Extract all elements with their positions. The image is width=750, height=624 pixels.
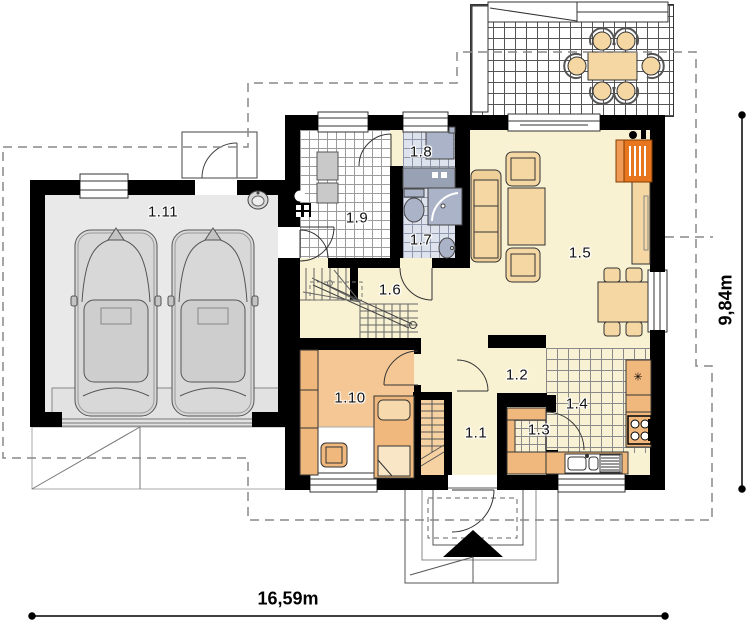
tv-cabinet [632, 182, 650, 264]
room-label-1-8: 1.8 [410, 144, 432, 161]
room-label-1-2: 1.2 [506, 367, 528, 384]
terrace-furniture [564, 28, 664, 104]
vestibule-hall-door [457, 360, 488, 391]
staircase [300, 268, 418, 338]
room-label-1-9: 1.9 [346, 210, 368, 227]
pantry-door [546, 412, 584, 450]
storage-window [403, 112, 448, 132]
fridge-icon: ✳ [633, 371, 642, 384]
floor-plan: 1.1 1.2 1.3 1.4 1.5 1.6 1.7 1.8 1.9 1.10… [0, 0, 750, 624]
garage-utility-door [300, 227, 334, 261]
room-label-1-10: 1.10 [334, 390, 365, 407]
stove [628, 416, 651, 444]
room-label-1-6: 1.6 [379, 282, 401, 299]
dimension-height-label: 9,84m [716, 274, 737, 325]
storage-door [359, 134, 391, 166]
living-room-furniture [471, 129, 652, 336]
coffee-table [508, 188, 545, 245]
kitchen-window [558, 473, 625, 492]
bathroom-door [400, 268, 432, 300]
wash-basin [439, 238, 455, 258]
entrance-steps [405, 488, 558, 583]
car-2 [168, 228, 258, 416]
washer [317, 152, 338, 180]
pillow [378, 400, 410, 420]
terrace-slider-window [508, 114, 600, 131]
garage-sink [248, 191, 268, 209]
bedroom-window [310, 473, 377, 492]
entrance-arrow-icon [443, 530, 503, 557]
side-canopy [182, 132, 257, 178]
toilet [404, 189, 424, 222]
plan-linework [0, 0, 750, 624]
utility-hall-door [300, 230, 328, 258]
fireplace [616, 140, 652, 182]
kitchen-sink [565, 454, 622, 473]
room-label-1-3: 1.3 [528, 422, 550, 439]
garage-window [80, 174, 128, 198]
room-label-1-5: 1.5 [569, 245, 591, 262]
pantry-shelves [507, 408, 546, 474]
flue-icon [629, 131, 637, 139]
room-label-1-7: 1.7 [410, 232, 432, 249]
dining-table [598, 282, 648, 322]
boiler-icon [295, 191, 306, 202]
terrace-edge [472, 2, 668, 112]
bed [374, 396, 414, 478]
car-1 [71, 228, 161, 416]
basement-stairs [421, 400, 444, 475]
bedroom-door [384, 351, 418, 385]
room-label-1-1: 1.1 [465, 425, 487, 442]
wardrobe [300, 350, 318, 475]
living-side-window [648, 270, 667, 332]
bath-partition [403, 168, 455, 188]
dimension-width-label: 16,59m [257, 589, 318, 610]
utility-window [318, 112, 368, 132]
shower [428, 188, 462, 225]
room-label-1-4: 1.4 [566, 396, 588, 413]
main-entrance-door [452, 490, 494, 532]
terrace-table [588, 52, 637, 80]
room-label-1-11: 1.11 [148, 204, 178, 221]
dryer [317, 183, 338, 203]
